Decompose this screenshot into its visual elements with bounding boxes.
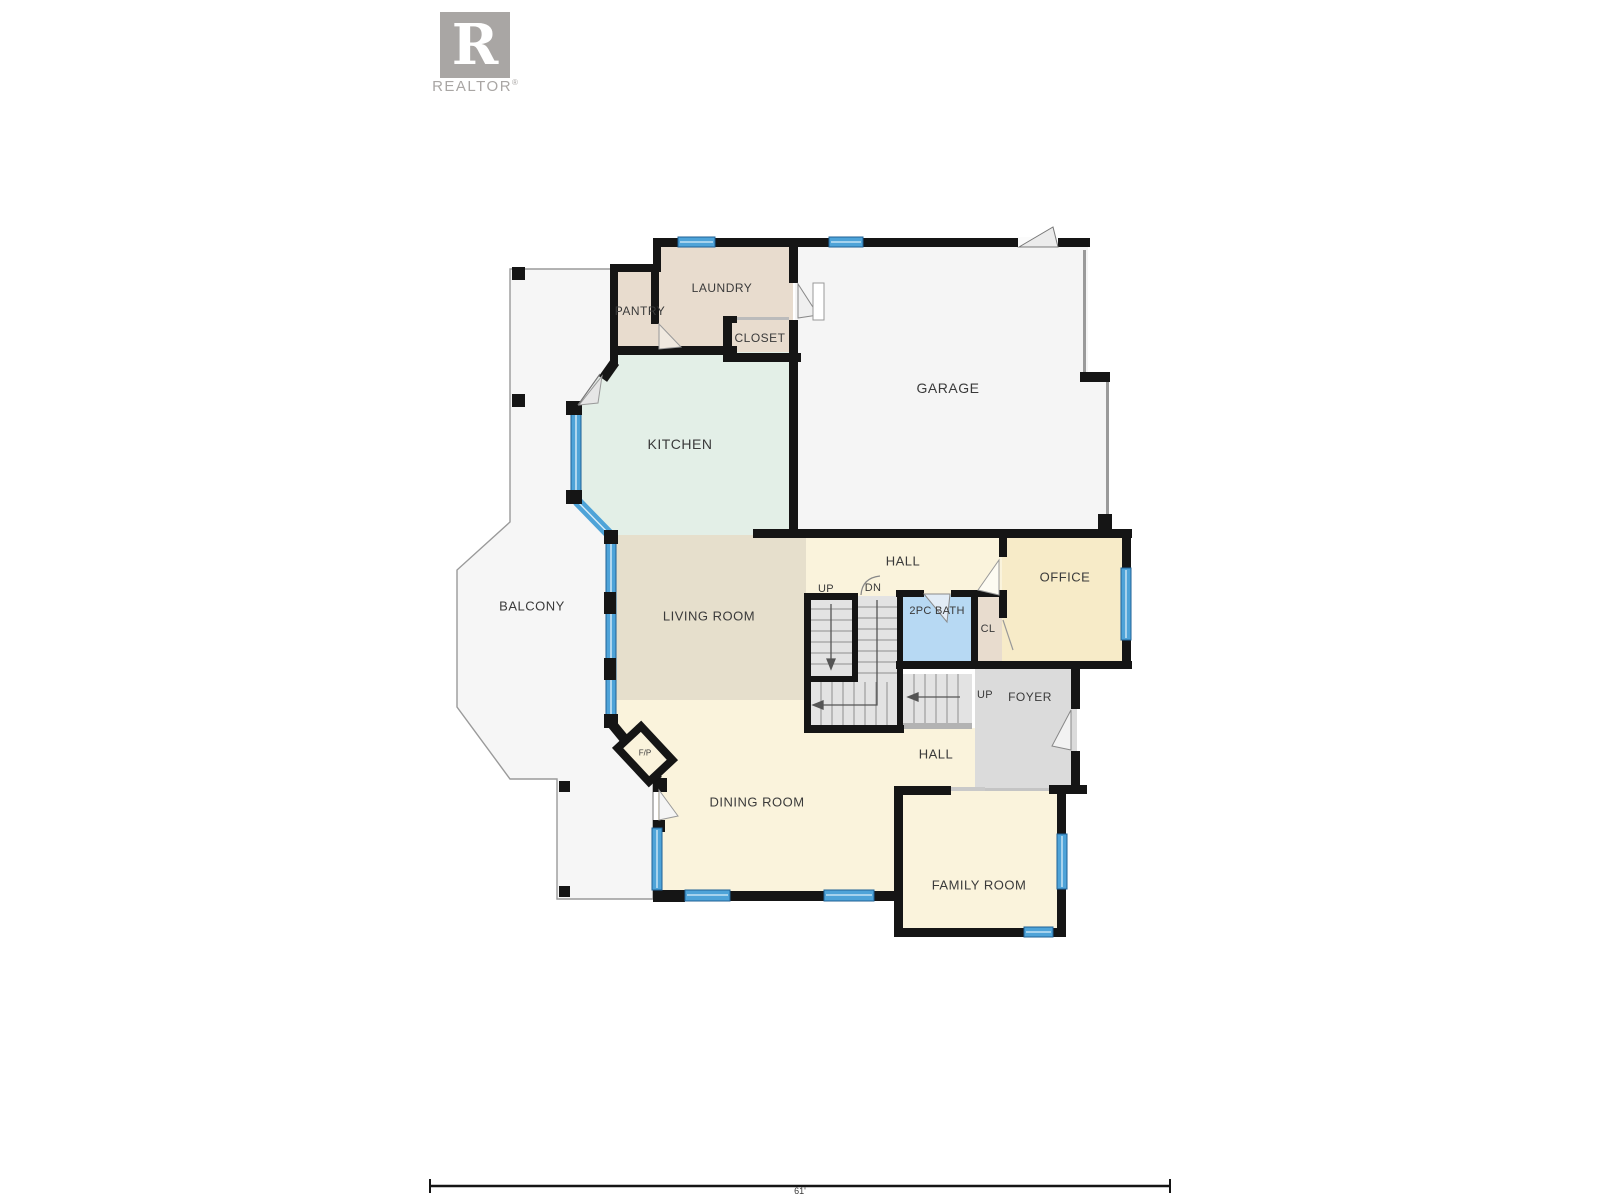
hall-lower-label: HALL [919, 747, 954, 762]
office-label: OFFICE [1040, 570, 1091, 585]
living-room-label: LIVING ROOM [663, 609, 755, 624]
stairs-up-foyer-label: UP [977, 689, 993, 701]
floorplan-page: R REALTOR® [0, 0, 1600, 1200]
balcony-label: BALCONY [499, 599, 565, 614]
balcony-post [559, 781, 570, 792]
stairs-up-label: UP [818, 583, 834, 595]
kitchen-label: KITCHEN [648, 436, 713, 452]
family-room-label: FAMILY ROOM [932, 878, 1027, 893]
pantry-label: PANTRY [615, 304, 666, 318]
foyer-label: FOYER [1008, 690, 1052, 704]
balcony-post [512, 267, 525, 280]
bath-label: 2PC BATH [909, 605, 964, 617]
scale-length-label: 61' [794, 1186, 806, 1196]
cl-label: CL [981, 623, 996, 635]
stairs-dn-label: DN [865, 582, 882, 594]
garage-label: GARAGE [917, 380, 980, 396]
laundry-label: LAUNDRY [692, 281, 753, 295]
dining-room-label: DINING ROOM [709, 795, 804, 810]
hall-upper-label: HALL [886, 554, 921, 569]
closet-label: CLOSET [734, 331, 785, 345]
fireplace-label: F/P [639, 749, 651, 758]
balcony-post [559, 886, 570, 897]
balcony-post [512, 394, 525, 407]
floorplan-svg [0, 0, 1600, 1200]
